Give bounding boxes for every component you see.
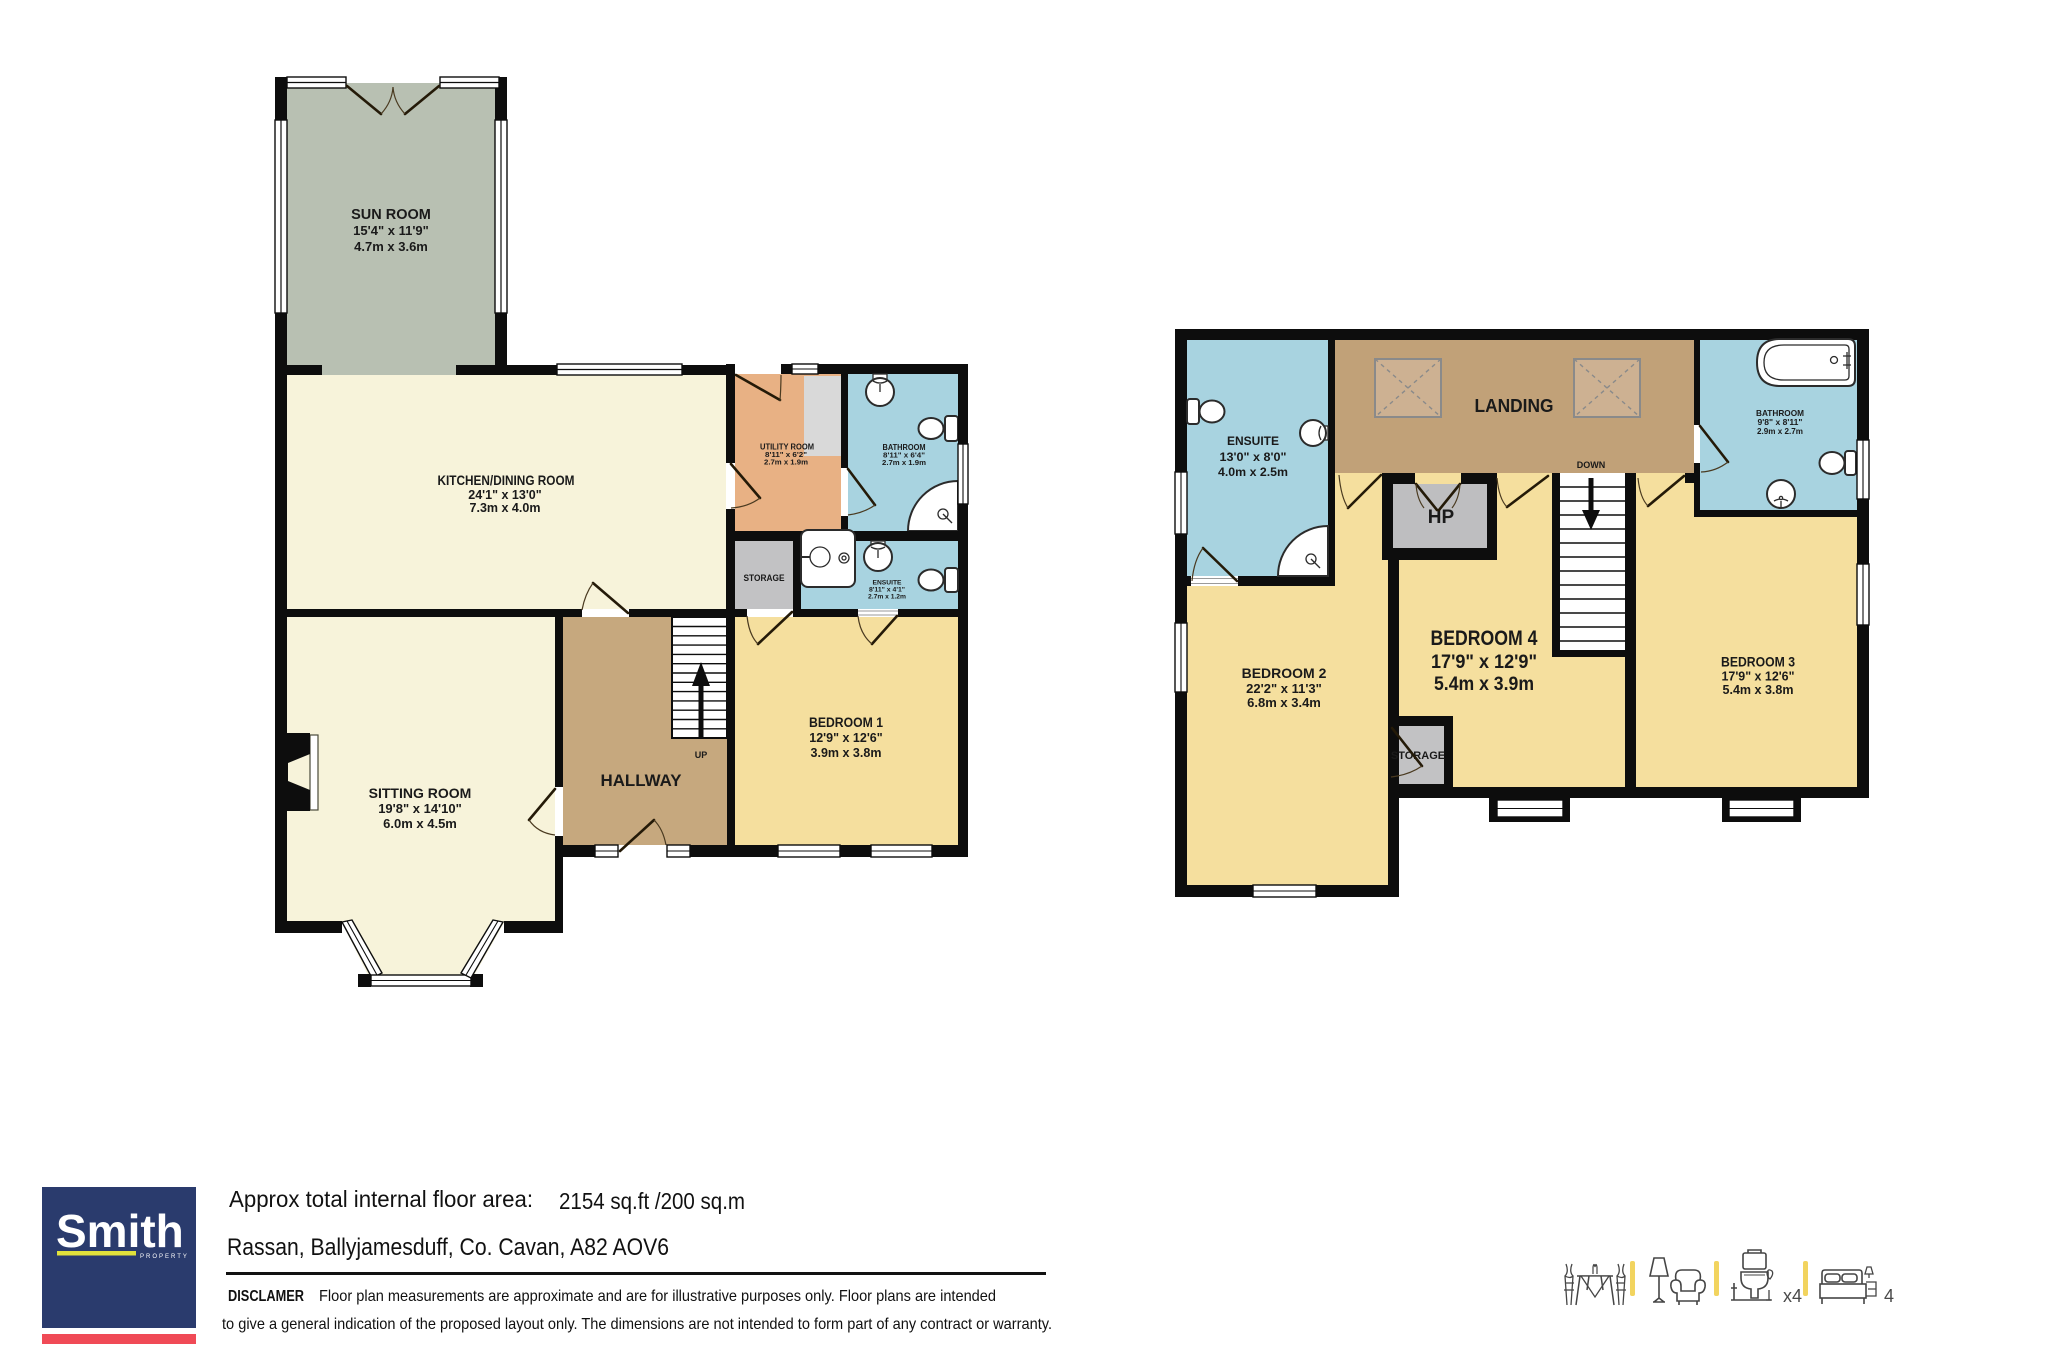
svg-text:KITCHEN/DINING ROOM: KITCHEN/DINING ROOM — [438, 472, 575, 488]
svg-text:Approx total internal floor ar: Approx total internal floor area: — [229, 1186, 533, 1212]
svg-text:BEDROOM 3: BEDROOM 3 — [1721, 654, 1795, 670]
svg-text:2.7m x 1.9m: 2.7m x 1.9m — [764, 458, 809, 467]
svg-text:2.7m x 1.9m: 2.7m x 1.9m — [882, 458, 927, 467]
svg-text:9'8" x 8'11": 9'8" x 8'11" — [1758, 418, 1803, 427]
svg-text:DISCLAMER: DISCLAMER — [228, 1288, 304, 1305]
svg-text:HP: HP — [1428, 507, 1455, 528]
svg-text:24'1" x 13'0": 24'1" x 13'0" — [468, 488, 541, 502]
svg-text:7.3m x 4.0m: 7.3m x 4.0m — [470, 501, 541, 515]
svg-text:12'9" x 12'6": 12'9" x 12'6" — [809, 731, 882, 745]
svg-text:PROPERTY: PROPERTY — [140, 1254, 189, 1260]
svg-text:STORAGE: STORAGE — [744, 573, 785, 583]
svg-text:BATHROOM: BATHROOM — [1756, 408, 1804, 418]
svg-text:8'11" x 4'1": 8'11" x 4'1" — [869, 587, 905, 594]
svg-text:UP: UP — [695, 750, 708, 760]
svg-text:17'9" x 12'9": 17'9" x 12'9" — [1431, 651, 1537, 673]
svg-text:BEDROOM 2: BEDROOM 2 — [1242, 665, 1327, 681]
svg-text:13'0" x 8'0": 13'0" x 8'0" — [1220, 452, 1287, 464]
svg-text:DOWN: DOWN — [1577, 460, 1606, 470]
svg-text:SUN ROOM: SUN ROOM — [351, 207, 431, 223]
svg-text:Floor plan measurements are ap: Floor plan measurements are approximate … — [319, 1288, 996, 1305]
svg-text:4: 4 — [1884, 1286, 1894, 1306]
svg-text:BEDROOM 4: BEDROOM 4 — [1431, 627, 1538, 650]
svg-text:LANDING: LANDING — [1475, 396, 1554, 416]
svg-text:SITTING ROOM: SITTING ROOM — [369, 785, 472, 801]
svg-text:Smith: Smith — [56, 1205, 184, 1257]
svg-text:6.0m x 4.5m: 6.0m x 4.5m — [383, 816, 457, 831]
svg-text:19'8" x 14'10": 19'8" x 14'10" — [378, 801, 462, 816]
svg-text:15'4" x 11'9": 15'4" x 11'9" — [353, 223, 429, 238]
svg-text:4.0m x 2.5m: 4.0m x 2.5m — [1218, 467, 1288, 479]
svg-text:2.7m x 1.2m: 2.7m x 1.2m — [868, 594, 906, 601]
svg-text:HALLWAY: HALLWAY — [601, 772, 682, 790]
svg-text:ENSUITE: ENSUITE — [1227, 434, 1279, 448]
svg-text:6.8m x 3.4m: 6.8m x 3.4m — [1247, 695, 1321, 710]
svg-text:17'9" x 12'6": 17'9" x 12'6" — [1722, 670, 1795, 684]
svg-text:to give a general indication o: to give a general indication of the prop… — [222, 1316, 1052, 1333]
svg-text:Rassan, Ballyjamesduff, Co. Ca: Rassan, Ballyjamesduff, Co. Cavan, A82 A… — [227, 1234, 669, 1261]
svg-text:2.9m x 2.7m: 2.9m x 2.7m — [1757, 427, 1803, 436]
svg-text:4.7m x 3.6m: 4.7m x 3.6m — [354, 239, 428, 254]
svg-text:BEDROOM 1: BEDROOM 1 — [809, 715, 883, 730]
svg-text:5.4m x 3.9m: 5.4m x 3.9m — [1434, 673, 1534, 695]
svg-text:5.4m x 3.8m: 5.4m x 3.8m — [1723, 683, 1794, 697]
svg-text:x4: x4 — [1783, 1286, 1802, 1306]
svg-text:ENSUITE: ENSUITE — [873, 580, 902, 587]
svg-text:3.9m x 3.8m: 3.9m x 3.8m — [811, 746, 882, 760]
svg-text:2154 sq.ft /200 sq.m: 2154 sq.ft /200 sq.m — [559, 1188, 745, 1214]
svg-text:22'2" x 11'3": 22'2" x 11'3" — [1246, 681, 1322, 696]
